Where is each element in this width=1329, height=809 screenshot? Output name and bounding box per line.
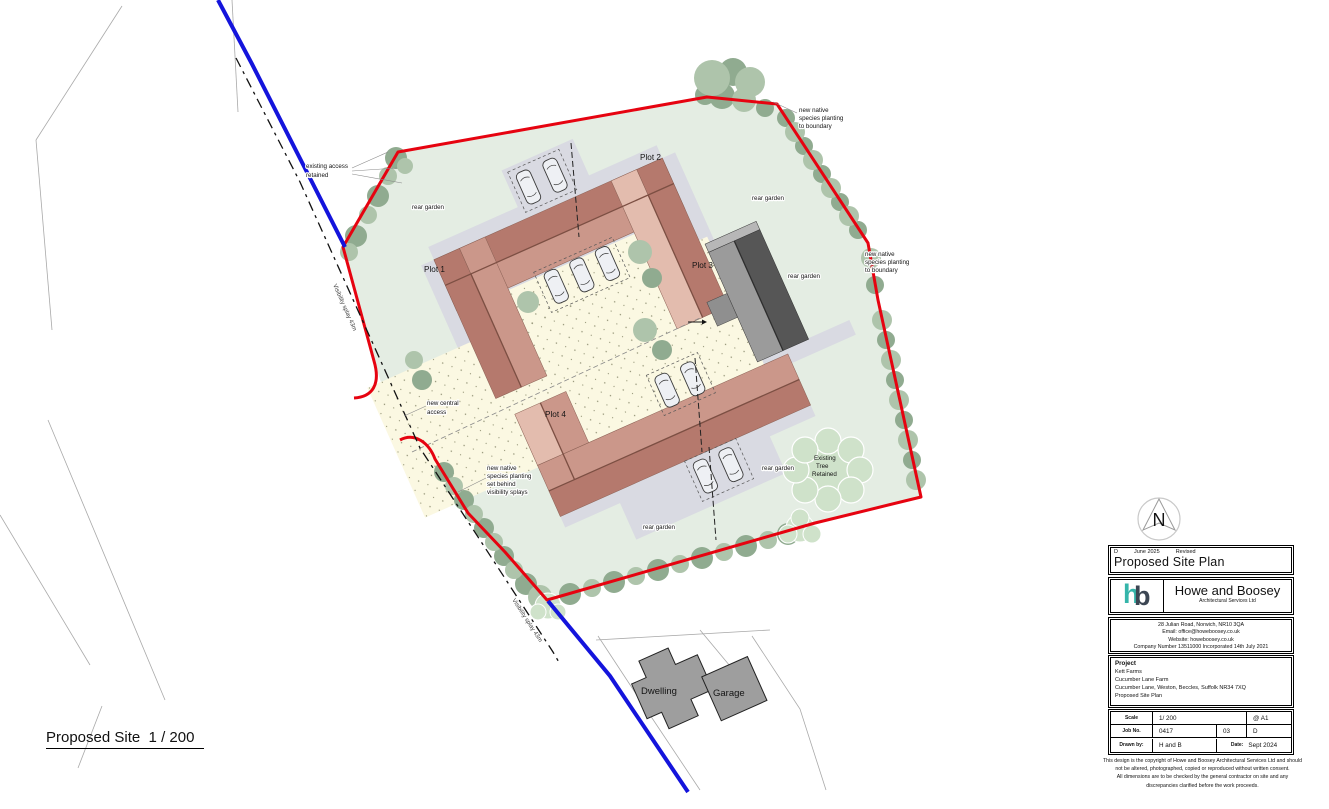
titleblock-info-table: Scale 1/ 200 @ A1 Job No. 0417 03 D Draw…	[1110, 711, 1292, 753]
label-rear-garden-1: rear garden	[412, 204, 445, 211]
job-label: Job No.	[1111, 725, 1153, 738]
label-rear-garden-5: rear garden	[643, 524, 676, 531]
label-rear-garden-4: rear garden	[762, 465, 795, 472]
revision-letter-cell: D	[1247, 725, 1291, 738]
company-email: Email: office@howeboosey.co.uk	[1111, 629, 1291, 636]
copyright-note: This design is the copyright of Howe and…	[1100, 757, 1305, 790]
svg-text:species planting: species planting	[865, 259, 910, 266]
svg-text:species planting: species planting	[487, 473, 532, 480]
label-existing-access: existing access	[306, 163, 348, 170]
svg-text:species planting: species planting	[799, 115, 844, 122]
drawn-label: Drawn by:	[1111, 739, 1153, 752]
label-garage: Garage	[713, 688, 745, 699]
label-rear-garden-2: rear garden	[752, 195, 785, 202]
svg-text:N: N	[1153, 510, 1166, 530]
label-visibility-splay-upper: Visibility splay 43m	[331, 283, 357, 332]
existing-tree	[783, 428, 873, 512]
label-planting-boundary-top: new native	[799, 107, 829, 114]
north-arrow-icon: N	[1136, 496, 1182, 542]
label-existing-tree: Existing	[814, 455, 836, 462]
svg-text:set behind: set behind	[487, 481, 516, 488]
project-drawing: Proposed Site Plan	[1115, 692, 1287, 700]
titleblock-revision-row: D June 2025 Revised	[1111, 548, 1291, 555]
svg-text:retained: retained	[306, 172, 329, 179]
company-logo: h b	[1111, 580, 1164, 612]
date-value: Sept 2024	[1248, 742, 1277, 749]
titleblock-title-box: D June 2025 Revised Proposed Site Plan	[1110, 547, 1292, 573]
label-plot-3: Plot 3	[692, 261, 713, 270]
svg-text:to boundary: to boundary	[865, 267, 899, 274]
titleblock-contact-box: 28 Julian Road, Norwich, NR10 3QA Email:…	[1110, 619, 1292, 652]
svg-text:Retained: Retained	[812, 471, 837, 478]
project-heading: Project	[1115, 660, 1287, 668]
label-rear-garden-3: rear garden	[788, 273, 821, 280]
label-plot-4: Plot 4	[545, 410, 566, 419]
drawn-value: H and B	[1153, 739, 1217, 752]
company-address: 28 Julian Road, Norwich, NR10 3QA	[1111, 622, 1291, 629]
titleblock-company-box: h b Howe and Boosey Architectural Servic…	[1110, 579, 1292, 613]
svg-text:access: access	[427, 409, 446, 416]
label-plot-2: Plot 2	[640, 153, 661, 162]
svg-text:visibility splays: visibility splays	[487, 489, 528, 496]
date-label: Date:	[1231, 742, 1244, 748]
project-address: Cucumber Lane, Weston, Beccles, Suffolk …	[1115, 684, 1287, 692]
project-site: Cucumber Lane Farm	[1115, 676, 1287, 684]
label-plot-1: Plot 1	[424, 265, 445, 274]
drawing-title: Proposed Site Plan	[1111, 555, 1291, 569]
company-number: Company Number 13511000 Incorporated 14t…	[1111, 644, 1291, 651]
scale-label: Scale	[1111, 712, 1153, 725]
project-client: Kett Farms	[1115, 668, 1287, 676]
svg-text:to boundary: to boundary	[799, 123, 833, 130]
job-value: 0417	[1153, 725, 1217, 738]
company-name: Howe and Boosey	[1164, 583, 1291, 598]
label-planting-boundary-right: new native	[865, 251, 895, 258]
logo-letter-b: b	[1134, 581, 1151, 612]
scale-value: 1/ 200	[1153, 712, 1247, 725]
svg-text:Tree: Tree	[816, 463, 829, 470]
company-website: Website: howeboosey.co.uk	[1111, 637, 1291, 644]
sheet-caption: Proposed Site 1 / 200	[46, 729, 204, 749]
company-subtitle: Architectural Services Ltd	[1164, 598, 1291, 604]
label-planting-splays: new native	[487, 465, 517, 472]
revision-number: 03	[1217, 725, 1247, 738]
label-dwelling: Dwelling	[641, 686, 677, 697]
titleblock-project-box: Project Kett Farms Cucumber Lane Farm Cu…	[1110, 657, 1292, 706]
sheet-size: @ A1	[1247, 712, 1291, 725]
road-edge-blue-upper	[218, 0, 345, 247]
date-cell: Date: Sept 2024	[1217, 739, 1291, 752]
label-new-central-access: new central	[427, 400, 459, 407]
